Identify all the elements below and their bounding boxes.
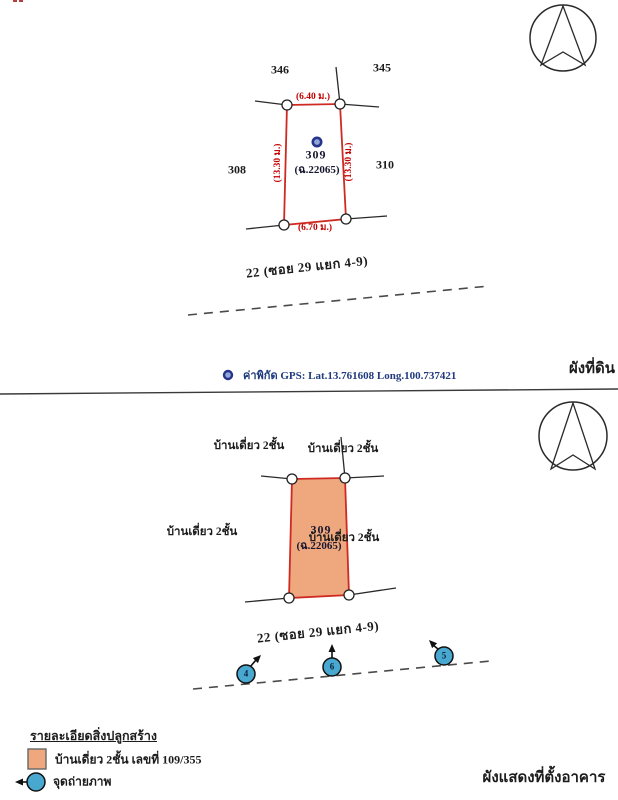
legend-building-label: บ้านเดี่ยว 2ชั้น เลขที่ 109/355 [55,751,201,770]
photo-point-4 [237,655,261,683]
dimension-top: (6.40 ม.) [296,93,330,103]
photo-point-4-number: 4 [244,669,249,678]
surrounding-top-right: บ้านเดี่ยว 2ชั้น [308,443,379,455]
plot-deed: (ฉ.22065) [294,165,339,177]
gps-point-icon [313,138,321,146]
panel-divider [0,389,618,394]
dimension-left: (13.30 ม.) [274,144,284,183]
survey-drawing [0,0,618,800]
bottom-panel-title: ผังแสดงที่ตั้งอาคาร [483,771,606,787]
north-compass-icon [530,5,596,71]
photo-point-5-number: 5 [442,651,447,660]
legend-photo-point-icon [15,773,45,791]
surrounding-top-left: บ้านเดี่ยว 2ชั้น [214,440,285,452]
plot-deed-2: (ฉ.22065) [296,541,341,553]
gps-coordinates: ค่าพิกัด GPS: Lat.13.761608 Long.100.737… [243,366,456,384]
dimension-bottom: (6.70 ม.) [298,224,332,234]
legend-header: รายละเอียดสิ่งปลูกสร้าง [30,726,157,746]
dimension-right: (13.30 ม.) [345,143,355,182]
neighbor-plot-308: 308 [228,164,246,177]
surrounding-left: บ้านเดี่ยว 2ชั้น [167,526,238,538]
neighbor-plot-345: 345 [373,62,391,75]
neighbor-plot-346: 346 [271,64,289,77]
top-panel-title: ผังที่ดิน [569,362,615,378]
stray-red-mark [13,0,23,2]
photo-point-6-number: 6 [330,662,335,671]
legend-photo-label: จุดถ่ายภาพ [53,773,111,792]
north-compass-icon-2 [539,402,607,470]
survey-document-page: 346 345 308 310 (6.40 ม.) (6.70 ม.) (13.… [0,0,618,800]
legend-building-swatch [28,749,46,769]
neighbor-plot-310: 310 [376,159,394,172]
plot-number-2: 309 [311,524,332,537]
plot-number: 309 [306,149,327,162]
gps-legend-dot-icon [224,371,232,379]
top-road-dashed-line [188,286,489,315]
